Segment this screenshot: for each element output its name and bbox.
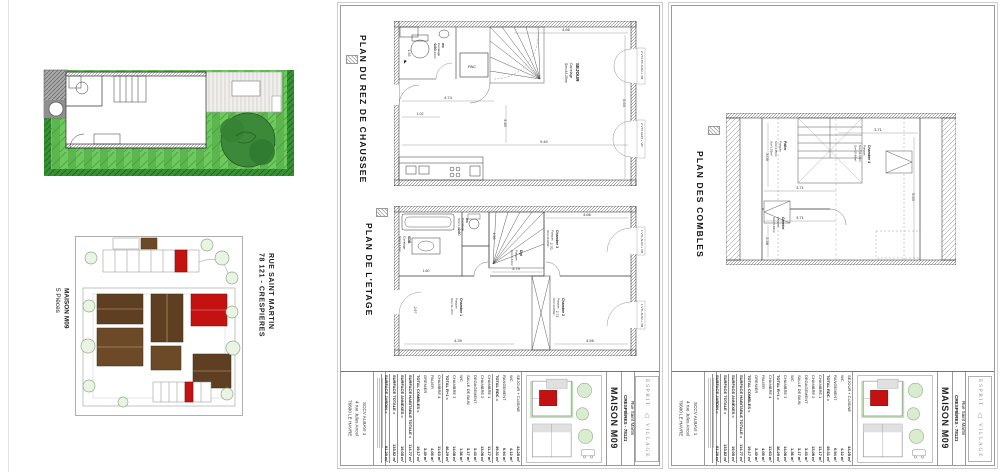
- table-total-combles: TOTAL COMBLES =19.17 m²: [413, 374, 420, 463]
- fridge-label: F: [404, 60, 407, 64]
- plan-combles: Palier Parquet Sm=4.05m² Su=1.52m² Chamb…: [726, 113, 956, 265]
- table-row: CHAMBRE 213.08 m²: [808, 374, 815, 463]
- logo-word-1: ESPRIT: [977, 379, 983, 407]
- svg-text:5.53: 5.53: [622, 99, 627, 108]
- project-address: Rue Saint Martin CRESPIÈRES - 78121: [621, 372, 634, 465]
- table-total-rdc: TOTAL RDC =49.31 m²: [823, 374, 830, 463]
- svg-text:4.74: 4.74: [444, 95, 453, 100]
- svg-text:2.74: 2.74: [555, 311, 559, 318]
- svg-text:Chambre 4: Chambre 4: [867, 145, 871, 163]
- wall-legend-swatch: [708, 126, 720, 135]
- svg-text:Sm=3.49m²: Sm=3.49m²: [772, 217, 776, 233]
- site-address-label: RUE SAINT MARTIN 78 121 - CRESPIERES: [256, 253, 275, 337]
- rdc-dimensions: 4.66 4.74 9.40 5.53 3.40 1.02 2.80 1.53: [402, 27, 628, 179]
- owner-street: 4 rue Jules Ancel: [353, 400, 360, 436]
- svg-text:Dgt: Dgt: [519, 250, 523, 257]
- surface-table: SEJOUR + CUISINE44.25 m² WC4.12 m² RANGE…: [716, 372, 852, 465]
- table-row: SALLE DE BAIN3.17 m²: [794, 374, 801, 463]
- owner-city: 76600 LE HAVRE: [677, 400, 684, 436]
- table-row: GRENIER3.49 m²: [751, 374, 758, 463]
- logo-word-2: VILLAGE: [644, 423, 650, 458]
- table-row: RANGEMENT0.94 m²: [499, 374, 506, 463]
- svg-text:Palier: Palier: [783, 141, 787, 151]
- table-row: DEGAGEMENT3.43 m²: [470, 374, 477, 463]
- big-tree: [220, 113, 275, 167]
- svg-text:Sm=11.17m²: Sm=11.17m²: [450, 298, 454, 315]
- terrace: [206, 72, 282, 112]
- svg-text:4.66: 4.66: [562, 27, 571, 32]
- svg-text:1.53: 1.53: [407, 50, 411, 57]
- highlight-parking-stall-2: [185, 382, 193, 402]
- etage-walls: [394, 206, 636, 356]
- svg-text:Grenier: Grenier: [781, 217, 785, 230]
- table-row: CHAMBRE 411.63 m²: [434, 374, 441, 463]
- project-city: CRESPIÈRES - 78121: [952, 395, 959, 441]
- table-summary: SURFACE ANNEXES =19.05 m²: [397, 374, 404, 463]
- table-row: RANGEMENT0.94 m²: [830, 374, 837, 463]
- etage-partitions: [399, 212, 631, 350]
- rdc-sejour-label: SEJOUR Carrelage Sm=44.25m²: [564, 63, 580, 84]
- svg-text:2.38: 2.38: [765, 237, 770, 246]
- svg-text:3.40: 3.40: [503, 119, 508, 128]
- svg-text:Parquet: Parquet: [551, 230, 555, 241]
- rdc-stairs: [490, 27, 544, 83]
- title-etage: PLAN DE L'ETAGE: [364, 223, 374, 317]
- project-address: Rue Saint Martin CRESPIÈRES - 78121: [952, 372, 965, 465]
- house-icon: ⌂: [642, 410, 652, 420]
- svg-text:1.56: 1.56: [492, 233, 496, 240]
- center-parking: [153, 382, 211, 402]
- svg-text:1.02: 1.02: [417, 112, 424, 116]
- svg-text:3.71: 3.71: [796, 185, 805, 190]
- table-summary: SURFACE JARDIN =81.20 m²: [381, 374, 388, 463]
- driveway: [44, 70, 68, 118]
- logo-word-1: ESPRIT: [644, 379, 650, 407]
- key-plan-highlight-unit: [870, 390, 887, 405]
- svg-text:Sm=11.63m²: Sm=11.63m²: [858, 145, 862, 162]
- garden-area-tag: [272, 96, 281, 112]
- rdc-entry-door: [394, 85, 419, 105]
- svg-text:Parquet: Parquet: [455, 298, 459, 309]
- svg-text:Chambre 3: Chambre 3: [555, 230, 559, 248]
- rdc-right-windows: 2 VTX PF AL03 + VR 2 VTX AL03 + VR: [613, 48, 645, 158]
- table-row: WC1.36 m²: [787, 374, 794, 463]
- sheet-combles: PLAN DES COMBLES: [668, 2, 998, 469]
- table-row: CHAMBRE 314.08 m²: [449, 374, 456, 463]
- house-name: MAISON M09: [61, 288, 70, 328]
- highlight-parking-stall: [175, 250, 187, 272]
- combles-palier-label: Palier Parquet Sm=4.05m² Su=1.52m²: [770, 141, 788, 157]
- table-row: CHAMBRE 213.08 m²: [477, 374, 484, 463]
- table-total-rdc: TOTAL RDC =49.31 m²: [492, 374, 499, 463]
- table-total-etage: TOTAL R+1 =46.29 m²: [442, 374, 449, 463]
- title-combles: PLAN DES COMBLES: [695, 151, 705, 258]
- svg-text:Carrelage: Carrelage: [403, 236, 407, 250]
- svg-text:3.71: 3.71: [874, 127, 883, 132]
- svg-text:Parquet: Parquet: [779, 141, 783, 152]
- house-name-label: MAISON M09 5 Pièces: [52, 288, 70, 328]
- svg-text:Parquet: Parquet: [863, 145, 867, 156]
- table-row: PALIER4.05 m²: [758, 374, 765, 463]
- house-footprint: [66, 72, 206, 148]
- esprit-village-logo: ESPRIT ⌂ VILLAGE: [635, 376, 659, 462]
- owner-block: SCCV ALBAVI 1 4 rue Jules Ancel 76600 LE…: [341, 372, 373, 465]
- surface-table: SEJOUR + CUISINE44.25 m² WC4.12 m² RANGE…: [385, 372, 521, 465]
- key-plan-drawing: [524, 375, 604, 463]
- table-row: GRENIER3.49 m²: [420, 374, 427, 463]
- table-row: PALIER4.05 m²: [427, 374, 434, 463]
- project-city: CRESPIÈRES - 78121: [621, 395, 628, 441]
- table-total-combles: TOTAL COMBLES =19.17 m²: [744, 374, 751, 463]
- svg-text:9.40: 9.40: [540, 139, 549, 144]
- rdc-walls: [394, 21, 636, 186]
- svg-text:Sm=3.17m²: Sm=3.17m²: [398, 236, 402, 252]
- svg-text:Parquet: Parquet: [515, 250, 519, 261]
- table-row: WC4.12 m²: [837, 374, 844, 463]
- title-block: SCCV ALBAVI 1 4 rue Jules Ancel 76600 LE…: [672, 371, 994, 465]
- roof-top-building: [141, 238, 157, 249]
- owner-city: 76600 LE HAVRE: [346, 400, 353, 436]
- logo-word-2: VILLAGE: [977, 423, 983, 458]
- etage-sdb-label: SDB Carrelage Sm=3.17m²: [398, 236, 411, 252]
- table-row: SEJOUR + CUISINE44.25 m²: [844, 374, 851, 463]
- combles-stairs: [798, 118, 862, 183]
- svg-text:SEJOUR: SEJOUR: [575, 63, 580, 82]
- svg-text:3.09: 3.09: [765, 153, 770, 162]
- svg-text:parquet: parquet: [777, 217, 781, 227]
- page-edge-line: [8, 0, 9, 472]
- svg-text:3.79: 3.79: [512, 266, 521, 271]
- etage-c1-label: Chambre 1 Parquet Sm=11.17m²: [450, 298, 463, 316]
- table-row: WC4.12 m²: [506, 374, 513, 463]
- site-street: RUE SAINT MARTIN: [265, 253, 274, 337]
- table-summary: SURFACE HABITABLE TOTALE =114.77 m²: [405, 374, 412, 463]
- wall-legend-swatch: [376, 208, 388, 217]
- wall-legend-swatch: [346, 55, 358, 64]
- rdc-kitchen: [399, 157, 483, 180]
- window-tag: 1 VTL AL03 + VR: [640, 230, 644, 254]
- svg-text:Chambre 2: Chambre 2: [561, 298, 565, 316]
- plan-rdc: 2 VTX PF AL03 + VR 2 VTX AL03 + VR F WC …: [394, 21, 646, 186]
- etage-dimensions: 4.66 2.70 3.79 1.60 1.56 2.80 2.67 4.39 …: [404, 212, 628, 344]
- rdc-door-arc: [394, 83, 490, 105]
- window-tag: 2 VTX AL03 + VR: [640, 123, 644, 147]
- architectural-plan-sheet: { "site": { "street": "RUE SAINT MARTIN"…: [0, 0, 1000, 472]
- svg-text:Parquet: Parquet: [557, 298, 561, 309]
- table-summary: SURFACE JARDIN =81.20 m²: [712, 374, 719, 463]
- project-house-name: MAISON M09: [937, 372, 952, 465]
- etage-dgt-label: Dgt Parquet Sm=3.43m²: [510, 250, 523, 266]
- window-tag: 2 VTX PF AL03 + VR: [640, 51, 644, 80]
- owner-block: SCCV ALBAVI 1 4 rue Jules Ancel 76600 LE…: [672, 372, 704, 465]
- site-city: 78 121 - CRESPIERES: [256, 253, 265, 337]
- table-summary: SURFACE ANNEXES =19.05 m²: [728, 374, 735, 463]
- svg-text:1.60: 1.60: [423, 269, 430, 273]
- project-house-name: MAISON M09: [606, 372, 621, 465]
- combles-velux-right: [886, 151, 912, 173]
- svg-text:SDB: SDB: [407, 236, 411, 244]
- table-row: SEJOUR + CUISINE44.25 m²: [513, 374, 520, 463]
- table-summary: SURFACE TOTALE =133.82 m²: [389, 374, 396, 463]
- svg-text:2.67: 2.67: [413, 307, 417, 314]
- combles-grenier-label: Grenier parquet Sm=3.49m²: [772, 217, 785, 233]
- svg-text:Chambre 1: Chambre 1: [459, 298, 463, 316]
- key-plan: [521, 372, 606, 465]
- table-total-etage: TOTAL R+1 =46.29 m²: [773, 374, 780, 463]
- svg-text:2.80: 2.80: [457, 229, 461, 236]
- sheet-rdc-etage: PLAN DU REZ DE CHAUSSEE 2 VTX PF AL03 + …: [337, 2, 663, 469]
- combles-walls: [726, 113, 956, 265]
- table-row: CHAMBRE 111.17 m²: [484, 374, 491, 463]
- svg-text:4.56: 4.56: [586, 338, 595, 343]
- house-icon: ⌂: [975, 410, 985, 420]
- esprit-village-logo: ESPRIT ⌂ VILLAGE: [968, 376, 992, 462]
- table-row: CHAMBRE 411.63 m²: [765, 374, 772, 463]
- pac-label: PAC: [468, 64, 476, 69]
- owner-street: 4 rue Jules Ancel: [684, 400, 691, 436]
- table-summary: SURFACE HABITABLE TOTALE =114.77 m²: [736, 374, 743, 463]
- logo-cell: ESPRIT ⌂ VILLAGE: [965, 372, 994, 465]
- svg-text:4.39: 4.39: [454, 338, 463, 343]
- svg-text:4.66: 4.66: [583, 212, 592, 217]
- title-block: SCCV ALBAVI 1 4 rue Jules Ancel 76600 LE…: [341, 371, 659, 465]
- house-rooms: 5 Pièces: [52, 288, 61, 328]
- svg-text:Sm=44.25m²: Sm=44.25m²: [564, 63, 568, 84]
- svg-text:Sm=4.05m²: Sm=4.05m²: [774, 141, 778, 157]
- key-plan-highlight-unit: [539, 390, 556, 405]
- svg-text:5.53: 5.53: [911, 193, 916, 202]
- title-rdc: PLAN DU REZ DE CHAUSSEE: [358, 35, 368, 184]
- logo-cell: ESPRIT ⌂ VILLAGE: [634, 372, 659, 465]
- table-summary: SURFACE TOTALE =133.82 m²: [720, 374, 727, 463]
- table-row: WC1.36 m²: [456, 374, 463, 463]
- svg-text:2.70: 2.70: [549, 243, 553, 250]
- svg-text:Sm=3.43m²: Sm=3.43m²: [510, 250, 514, 266]
- key-plan-drawing: [855, 375, 935, 463]
- table-row: SALLE DE BAIN3.17 m²: [463, 374, 470, 463]
- owner-name: SCCV ALBAVI 1: [692, 400, 699, 436]
- svg-text:Carrelage: Carrelage: [569, 63, 573, 78]
- key-plan: [852, 372, 937, 465]
- combles-c4-label: Chambre 4 Parquet Sm=11.63m² Su=10.46m²: [854, 145, 872, 163]
- owner-name: SCCV ALBAVI 1: [361, 400, 368, 436]
- svg-text:Su=10.46m²: Su=10.46m²: [854, 145, 858, 161]
- plan-etage: 1 VTL AL03 + VR 1 VTL AL03 + VR: [394, 206, 646, 356]
- table-row: CHAMBRE 314.08 m²: [780, 374, 787, 463]
- svg-text:3.71: 3.71: [796, 215, 805, 220]
- garden-site-plan: [36, 56, 308, 184]
- table-row: DEGAGEMENT3.43 m²: [801, 374, 808, 463]
- rdc-pac-closet: PAC: [460, 53, 488, 77]
- mass-site-plan: [75, 236, 243, 416]
- svg-text:2.80: 2.80: [433, 44, 437, 51]
- window-tag: 1 VTL AL03 + VR: [640, 304, 644, 328]
- table-row: CHAMBRE 111.17 m²: [815, 374, 822, 463]
